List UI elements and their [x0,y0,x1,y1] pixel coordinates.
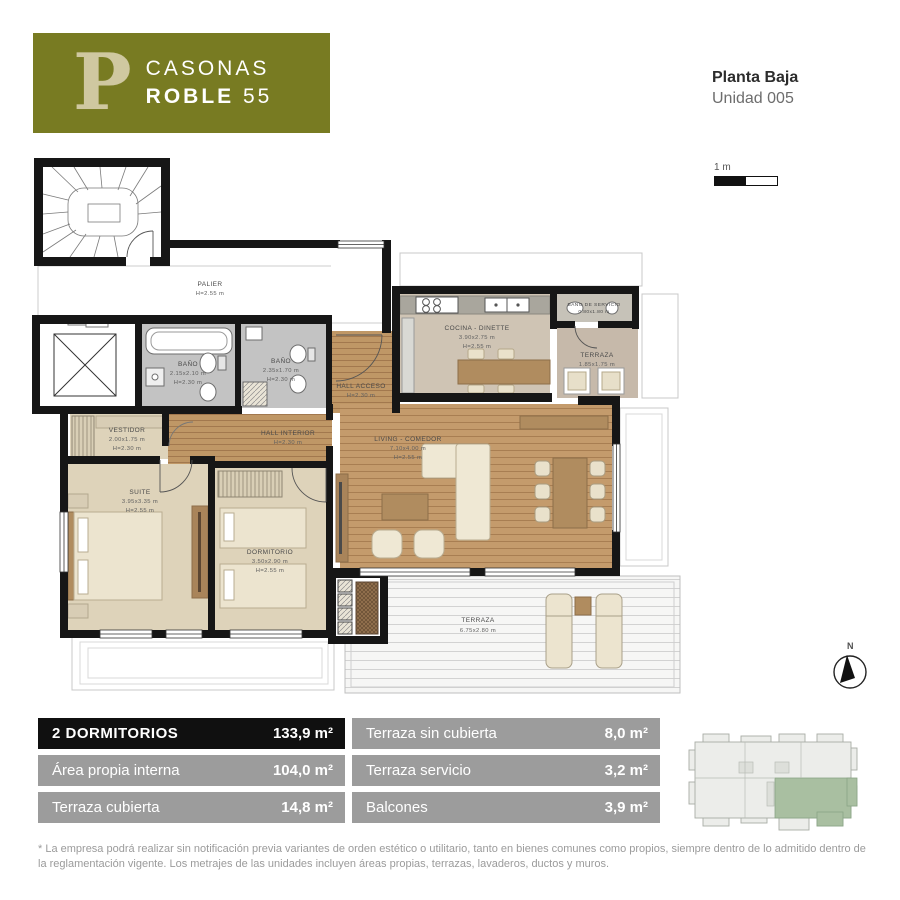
svg-text:3.90x2.75 m: 3.90x2.75 m [459,335,495,341]
parrilla [328,570,388,644]
svg-text:TERRAZA: TERRAZA [461,617,494,624]
svg-text:1.85x1.75 m: 1.85x1.75 m [579,362,615,368]
north-arrow: N [824,638,876,696]
area-value: 8,0 m² [605,725,660,742]
svg-text:0.80x1.80 m: 0.80x1.80 m [578,309,609,315]
svg-text:H=2.55 m: H=2.55 m [126,508,155,514]
svg-text:H=2.30 m: H=2.30 m [267,377,296,383]
svg-text:2.00x1.75 m: 2.00x1.75 m [109,437,145,443]
svg-text:H=2.30 m: H=2.30 m [174,380,203,386]
area-label: Balcones [352,799,428,816]
logo-letter-p: P [73,44,132,122]
svg-text:6.75x2.80 m: 6.75x2.80 m [460,628,496,634]
svg-text:H=2.55 m: H=2.55 m [256,568,285,574]
svg-text:HALL INTERIOR: HALL INTERIOR [261,430,315,437]
scale-bar: 1 m [714,162,778,186]
area-label: Terraza cubierta [38,799,160,816]
svg-text:7.10x4.00 m: 7.10x4.00 m [390,446,426,452]
scale-label: 1 m [714,162,778,173]
svg-text:H=2.55 m: H=2.55 m [394,455,423,461]
area-row-terraza-sin-cubierta: Terraza sin cubierta 8,0 m² [352,718,660,749]
area-label: 2 DORMITORIOS [38,725,178,742]
svg-text:HALL ACCESO: HALL ACCESO [336,383,385,390]
brand-line1: CASONAS [146,55,273,83]
svg-text:LIVING - COMEDOR: LIVING - COMEDOR [374,436,441,443]
area-row-terraza-servicio: Terraza servicio 3,2 m² [352,755,660,786]
area-value: 133,9 m² [273,725,345,742]
svg-text:2.35x1.70 m: 2.35x1.70 m [263,368,299,374]
svg-text:H=2.30 m: H=2.30 m [113,446,142,452]
area-row-dormitorios: 2 DORMITORIOS 133,9 m² [38,718,345,749]
area-table: 2 DORMITORIOS 133,9 m² Terraza sin cubie… [38,718,660,823]
disclaimer-text: * La empresa podrá realizar sin notifica… [38,842,872,873]
brand-name: CASONAS ROBLE 55 [146,55,273,112]
area-label: Terraza servicio [352,762,471,779]
svg-text:PALIER: PALIER [197,281,222,288]
area-label: Terraza sin cubierta [352,725,497,742]
plan-unit: Unidad 005 [712,89,798,108]
area-row-terraza-cubierta: Terraza cubierta 14,8 m² [38,792,345,823]
area-value: 104,0 m² [273,762,345,779]
svg-text:3.50x2.90 m: 3.50x2.90 m [252,559,288,565]
svg-text:H=2.30 m: H=2.30 m [347,393,376,399]
svg-text:BAÑO: BAÑO [271,356,291,365]
svg-text:COCINA - DINETTE: COCINA - DINETTE [445,325,510,332]
area-row-balcones: Balcones 3,9 m² [352,792,660,823]
brand-bold: ROBLE [146,85,235,108]
svg-text:2.15x2.10 m: 2.15x2.10 m [170,371,206,377]
svg-text:3.95x3.35 m: 3.95x3.35 m [122,499,158,505]
area-value: 14,8 m² [281,799,345,816]
svg-text:H=2.55 m: H=2.55 m [196,291,225,297]
svg-text:BAÑO: BAÑO [178,359,198,368]
brand-line2: ROBLE 55 [146,83,273,111]
brand-number: 55 [243,85,272,108]
plan-identifier: Planta Baja Unidad 005 [712,68,798,108]
stairwell [43,167,161,257]
floor-plan: PALIER H=2.55 m BAÑO 2.15x2.10 m H=2.30 … [30,156,690,711]
brand-logo: P CASONAS ROBLE 55 [33,33,330,133]
svg-text:N: N [847,641,854,651]
key-plan [683,726,863,836]
area-value: 3,9 m² [605,799,660,816]
svg-text:H=2.55 m: H=2.55 m [463,344,492,350]
svg-text:DORMITORIO: DORMITORIO [247,549,293,556]
svg-text:SUITE: SUITE [129,489,150,496]
svg-text:H=2.30 m: H=2.30 m [274,440,303,446]
area-row-area-propia: Área propia interna 104,0 m² [38,755,345,786]
svg-text:BAÑO DE SERVICIO: BAÑO DE SERVICIO [567,301,620,308]
scale-bar-graphic [714,176,778,186]
area-label: Área propia interna [38,762,180,779]
area-value: 3,2 m² [605,762,660,779]
svg-text:VESTIDOR: VESTIDOR [109,427,145,434]
plan-title: Planta Baja [712,68,798,87]
svg-text:TERRAZA: TERRAZA [580,352,613,359]
